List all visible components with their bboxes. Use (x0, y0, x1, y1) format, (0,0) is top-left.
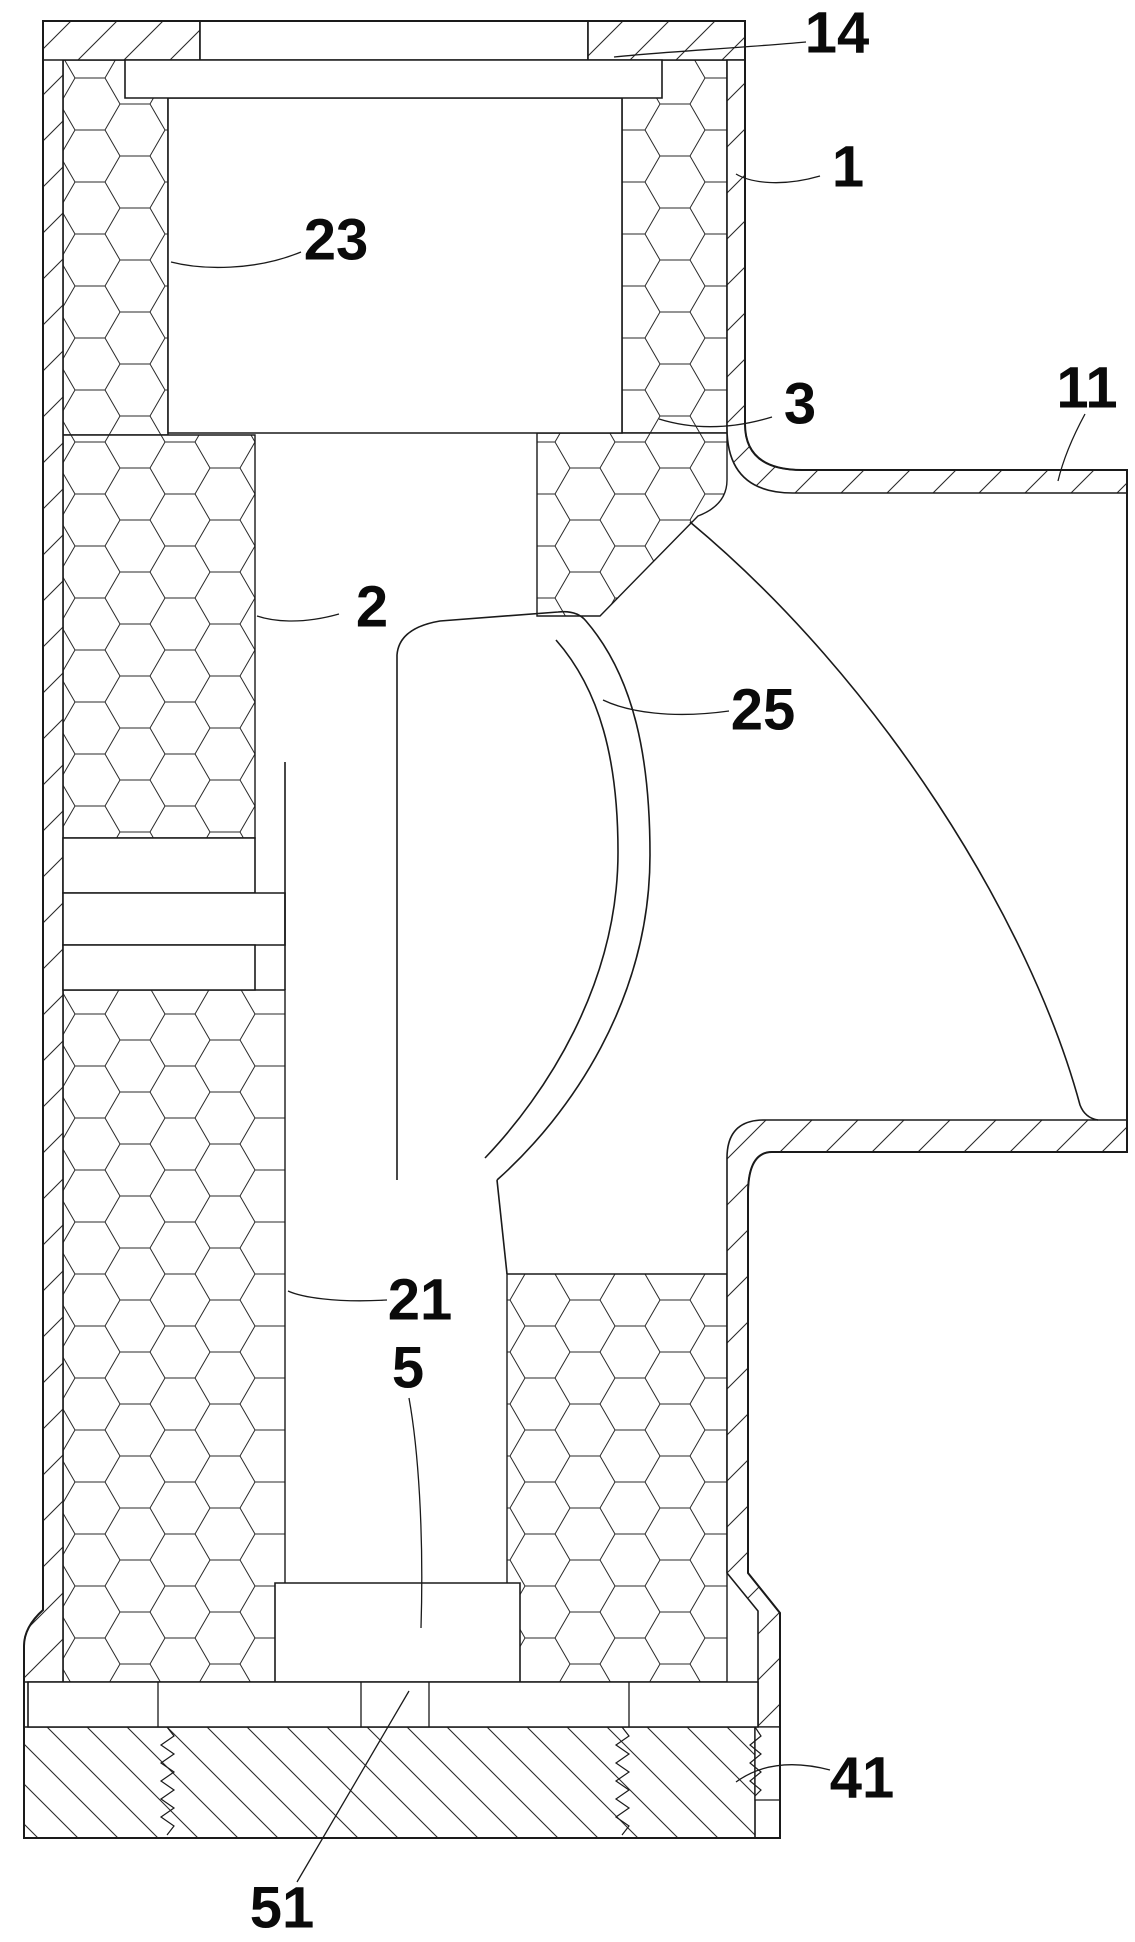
top-wall-left-hatch (43, 21, 200, 60)
top-wall-right-hatch (588, 21, 745, 60)
bottom-retainer-band (28, 1682, 758, 1727)
ref-label-21: 21 (388, 1268, 453, 1333)
ref-label-14: 14 (805, 1, 870, 66)
patent-figure: 141233112252154151 (0, 0, 1135, 1942)
ref-label-41: 41 (830, 1746, 895, 1811)
top-plate (125, 60, 662, 98)
honeycomb-liner-lower-right (507, 1274, 727, 1682)
ref-label-51: 51 (250, 1876, 315, 1941)
ref-label-3: 3 (784, 372, 816, 437)
ref-label-1: 1 (832, 135, 864, 200)
ref-label-5: 5 (392, 1336, 424, 1401)
patent-figure-page: 141233112252154151 (0, 0, 1135, 1942)
side-slot-upper (63, 838, 255, 893)
honeycomb-liner-mid-left (63, 435, 255, 838)
ref-label-2: 2 (356, 575, 388, 640)
top-cover-plug (200, 21, 588, 60)
honeycomb-liner-lower-left (63, 990, 285, 1682)
side-slot-middle (63, 893, 285, 945)
honeycomb-liner-upper-left (63, 60, 168, 435)
upper-chamber-cavity (168, 98, 622, 433)
ref-label-25: 25 (731, 678, 796, 743)
ref-label-11: 11 (1056, 356, 1117, 421)
side-slot-lower (63, 945, 255, 990)
lower-insert-block (275, 1583, 520, 1682)
ref-label-23: 23 (304, 208, 369, 273)
honeycomb-liner-upper-right (622, 60, 727, 433)
bottom-threaded-band-hatch (24, 1727, 755, 1838)
